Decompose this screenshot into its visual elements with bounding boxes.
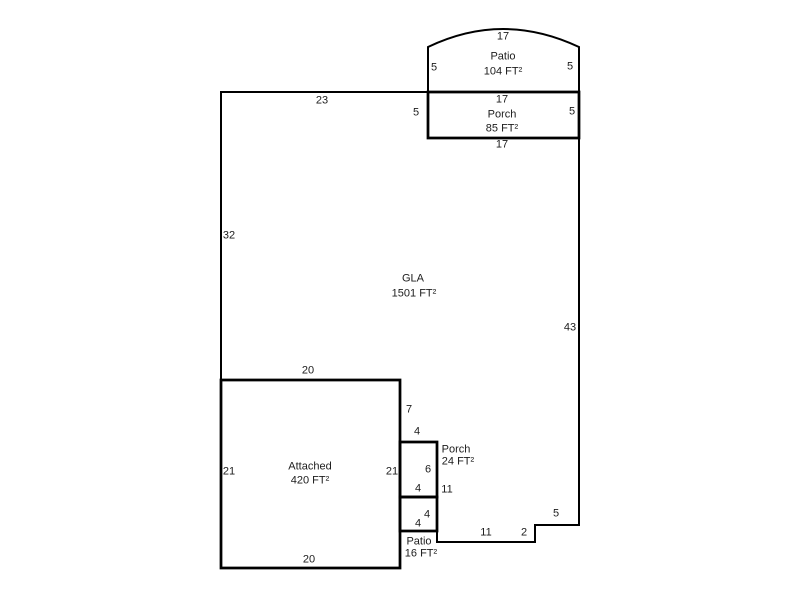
patio-side-size: 16 FT² <box>405 549 437 560</box>
gla-left-dim: 32 <box>223 231 235 242</box>
porch-top-right-dim: 5 <box>569 107 575 118</box>
patio-top-right-dim: 5 <box>567 62 573 73</box>
gla-west-lower-dim: 11 <box>441 485 452 496</box>
porch-side-top-dim: 4 <box>414 427 420 438</box>
attached-name: Attached <box>288 462 331 473</box>
porch-side-height-dim: 6 <box>425 465 431 476</box>
patio-side-bottom-dim: 4 <box>415 519 421 530</box>
patio-side-name: Patio <box>406 537 431 548</box>
porch-top-name: Porch <box>488 110 517 121</box>
gla-size: 1501 FT² <box>392 289 437 300</box>
attached-bottom-dim: 20 <box>303 555 315 566</box>
floor-plan-sketch: 17 5 5 Patio 104 FT² 17 5 5 Porch 85 FT²… <box>0 0 800 600</box>
porch-side-bottom-dim: 4 <box>415 484 421 495</box>
patio-top-left-dim: 5 <box>431 63 437 74</box>
patio-top-size: 104 FT² <box>484 67 523 78</box>
attached-size: 420 FT² <box>291 476 330 487</box>
gla-bottom-dim: 11 <box>480 528 491 539</box>
porch-top-size: 85 FT² <box>486 124 518 135</box>
patio-top-name: Patio <box>490 52 515 63</box>
patio-side-height-dim: 4 <box>424 510 430 521</box>
gla-step-down-dim: 2 <box>521 528 527 539</box>
gla-jog-right-dim: 7 <box>406 405 412 416</box>
gla-name: GLA <box>402 274 424 285</box>
gla-top-dim: 23 <box>316 96 328 107</box>
attached-left-dim: 21 <box>223 467 235 478</box>
attached-top-dim: 20 <box>302 366 314 377</box>
gla-step-right-dim: 5 <box>553 509 559 520</box>
porch-top-width-dim: 17 <box>496 95 508 106</box>
floor-plan-drawing <box>0 0 800 600</box>
gla-right-dim: 43 <box>564 323 576 334</box>
patio-top-width-dim: 17 <box>497 32 509 43</box>
porch-top-left-dim: 5 <box>413 108 419 119</box>
porch-side-name: Porch <box>442 445 471 456</box>
porch-side-size: 24 FT² <box>442 457 474 468</box>
porch-top-bottom-dim: 17 <box>496 140 508 151</box>
attached-right-dim: 21 <box>386 467 398 478</box>
